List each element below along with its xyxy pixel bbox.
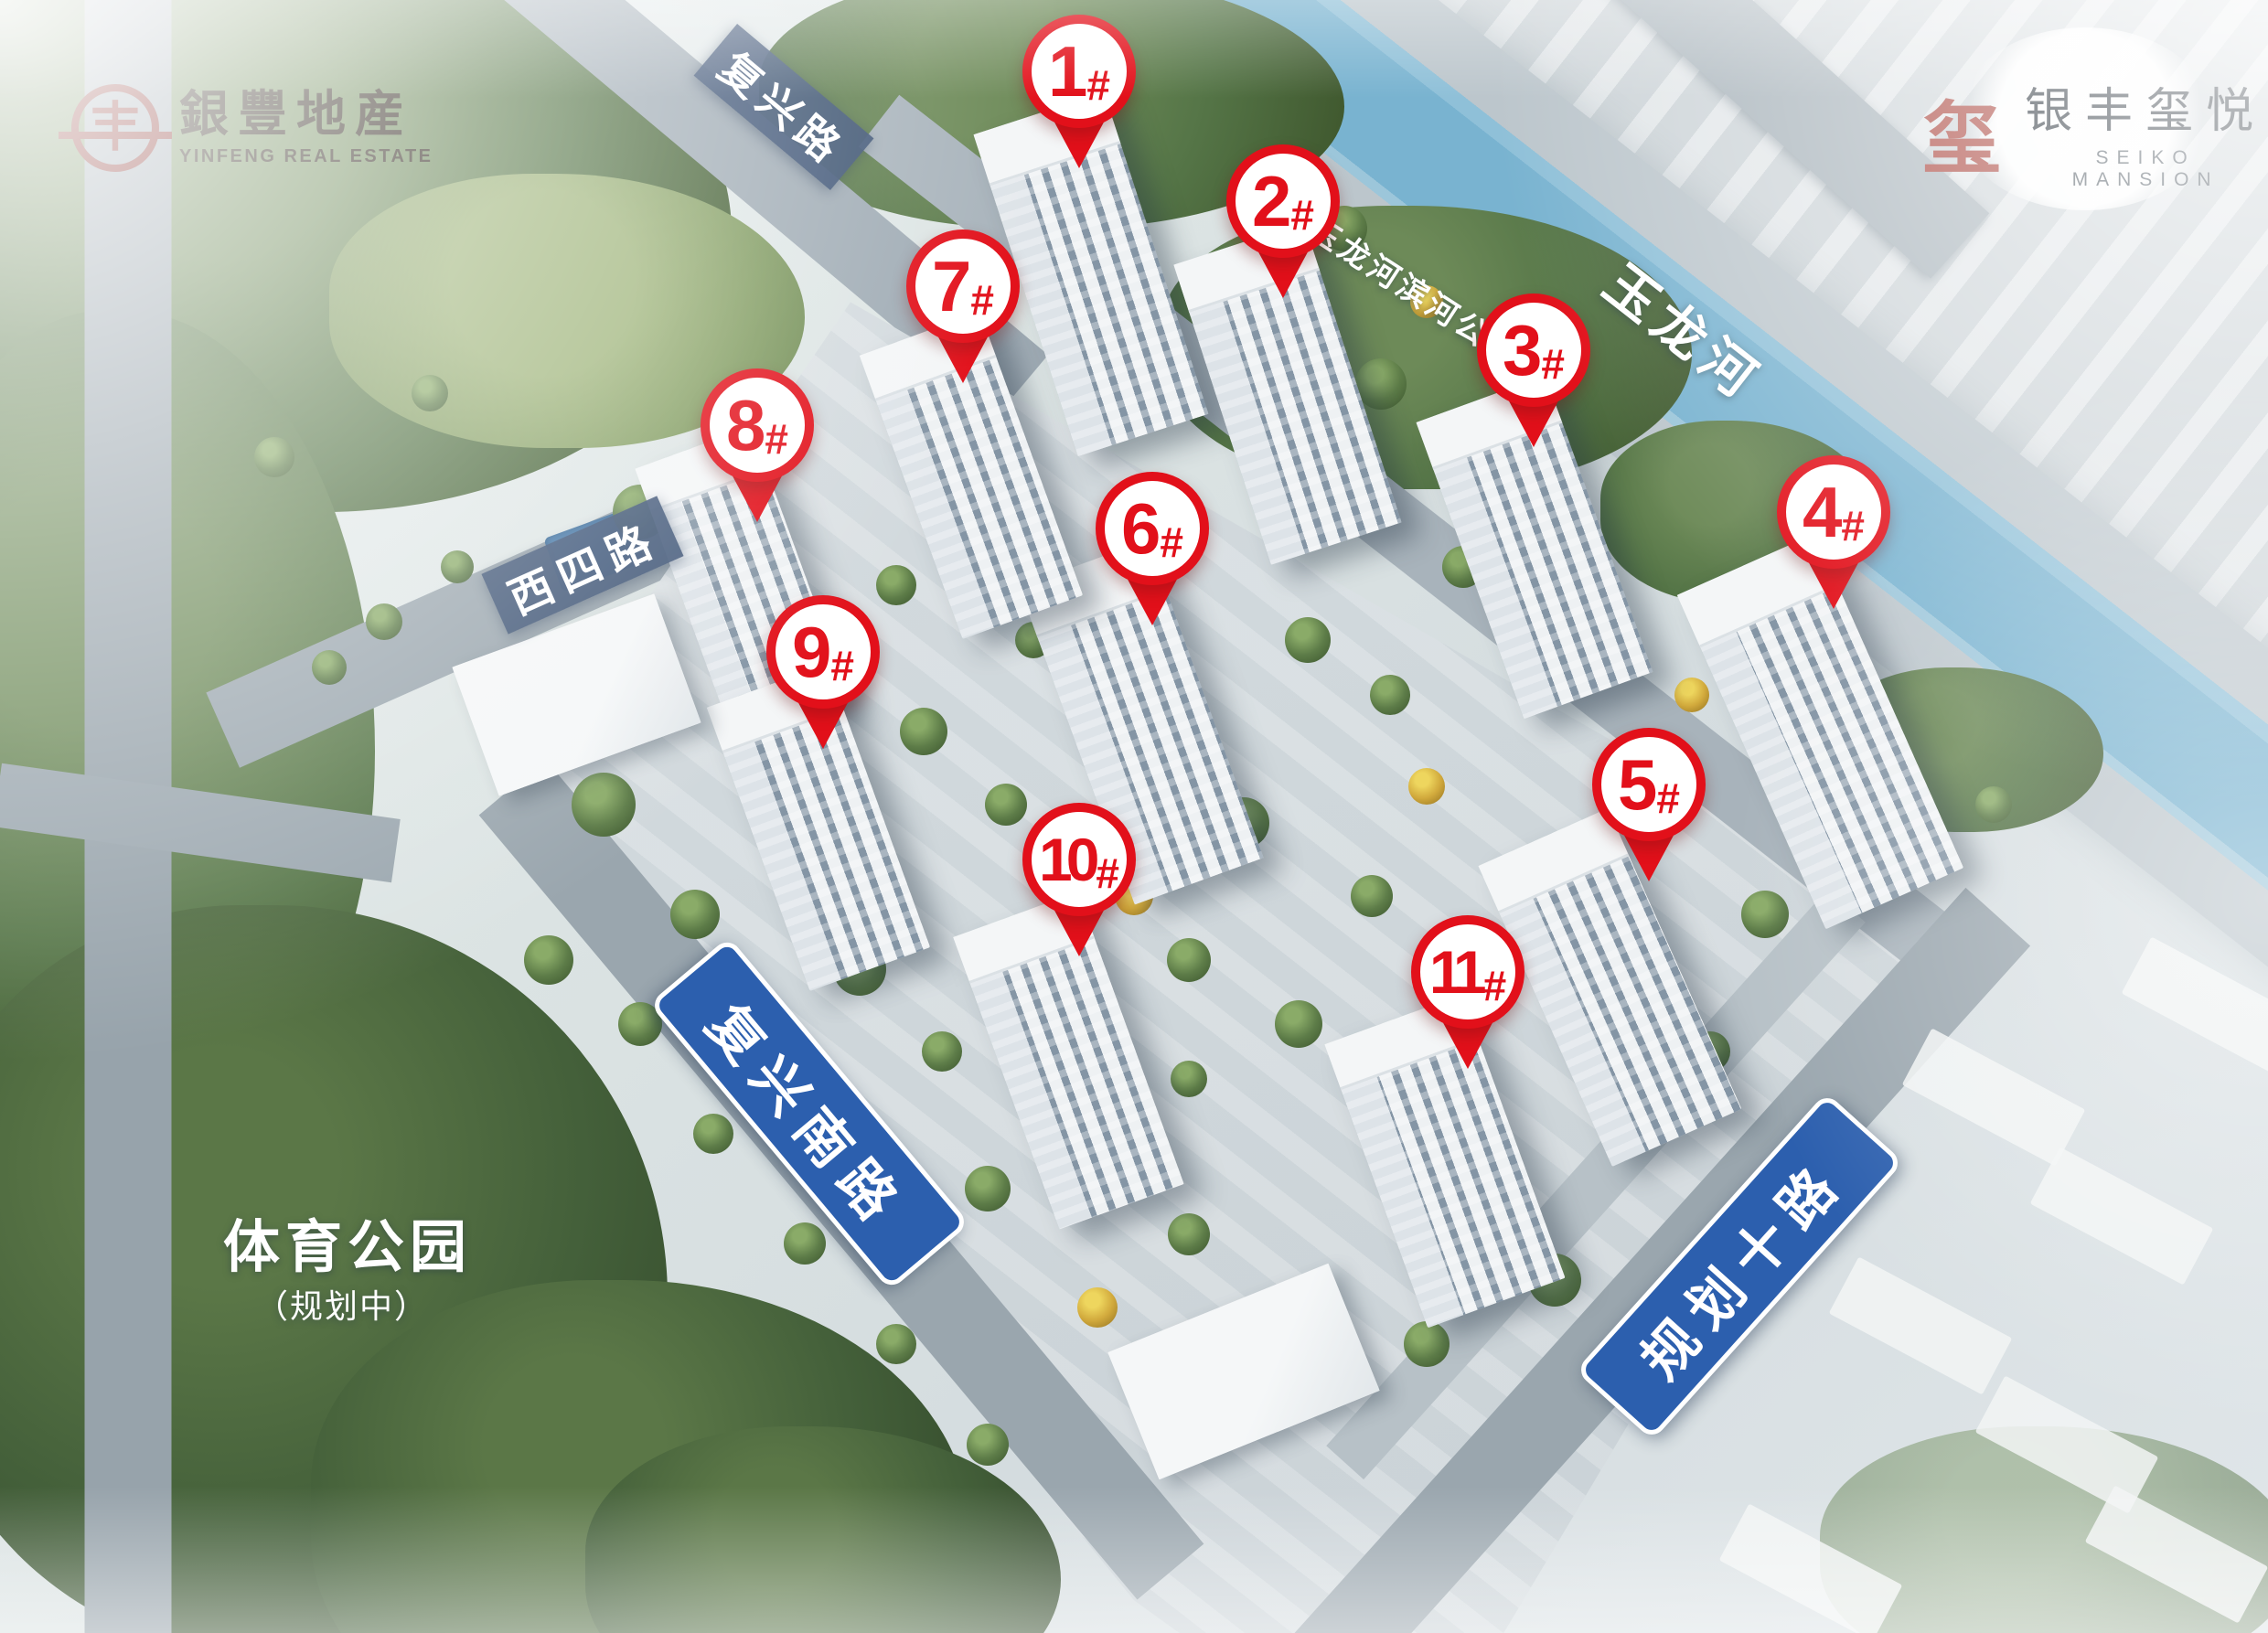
marker-circle: 4# — [1777, 455, 1890, 569]
marker-hash-suffix: # — [1160, 521, 1183, 563]
project-name-en: SEIKO MANSION — [2023, 147, 2268, 191]
marker-hash-suffix: # — [1096, 852, 1119, 894]
project-logo: 玺 银丰玺悦 SEIKO MANSION — [1920, 88, 2268, 191]
marker-circle: 7# — [906, 229, 1020, 343]
marker-number: 8 — [726, 390, 762, 461]
marker-number: 1 — [1048, 36, 1084, 107]
marker-number: 2 — [1252, 165, 1288, 237]
marker-number: 3 — [1503, 315, 1538, 386]
marker-circle: 5# — [1592, 728, 1706, 841]
marker-number: 11 — [1429, 942, 1481, 1002]
building-marker-11[interactable]: 11# — [1411, 915, 1524, 1069]
marker-circle: 8# — [701, 368, 814, 482]
marker-number: 4 — [1803, 476, 1838, 548]
marker-number: 5 — [1618, 749, 1653, 820]
marker-hash-suffix: # — [765, 418, 788, 460]
building-marker-10[interactable]: 10# — [1022, 803, 1136, 956]
building-marker-3[interactable]: 3# — [1477, 294, 1590, 447]
marker-circle: 6# — [1096, 472, 1209, 585]
seal-glyph: 玺 — [1922, 100, 2001, 178]
project-name-cn: 银丰玺悦 — [2023, 88, 2268, 138]
marker-circle: 3# — [1477, 294, 1590, 407]
marker-circle: 2# — [1226, 144, 1340, 258]
building-marker-7[interactable]: 7# — [906, 229, 1020, 383]
site-plan-rendering: 复兴路西四路复兴南路规划十路 玉龙河玉龙河滨河公园体育公园（规划中） 1#2#3… — [0, 0, 2268, 1633]
marker-circle: 1# — [1022, 15, 1136, 128]
marker-number: 10 — [1039, 829, 1093, 890]
marker-number: 7 — [932, 251, 968, 322]
building-marker-5[interactable]: 5# — [1592, 728, 1706, 881]
building-marker-9[interactable]: 9# — [766, 595, 880, 749]
marker-hash-suffix: # — [1541, 343, 1565, 385]
seal-glyph: 丰 — [89, 101, 142, 155]
marker-number: 9 — [792, 616, 828, 688]
developer-name-en: YINFENG REAL ESTATE — [179, 146, 433, 167]
building-marker-1[interactable]: 1# — [1022, 15, 1136, 168]
marker-circle: 11# — [1411, 915, 1524, 1029]
marker-hash-suffix: # — [1086, 64, 1110, 106]
building-marker-2[interactable]: 2# — [1226, 144, 1340, 298]
marker-hash-suffix: # — [830, 645, 854, 687]
marker-circle: 9# — [766, 595, 880, 709]
marker-circle: 10# — [1022, 803, 1136, 916]
building-marker-8[interactable]: 8# — [701, 368, 814, 522]
building-marker-4[interactable]: 4# — [1777, 455, 1890, 609]
building-markers-layer: 1#2#3#4#5#6#7#8#9#10#11# — [0, 0, 2268, 1633]
developer-logo: 丰 銀豐地産 YINFENG REAL ESTATE — [71, 84, 433, 172]
marker-hash-suffix: # — [1656, 777, 1680, 819]
marker-hash-suffix: # — [1290, 194, 1314, 236]
square-seal-icon: 玺 — [1920, 95, 2003, 183]
marker-number: 6 — [1121, 493, 1157, 564]
marker-hash-suffix: # — [1841, 505, 1865, 547]
round-seal-icon: 丰 — [71, 84, 159, 172]
marker-hash-suffix: # — [1483, 965, 1507, 1007]
developer-name-cn: 銀豐地産 — [179, 89, 433, 141]
building-marker-6[interactable]: 6# — [1096, 472, 1209, 625]
marker-hash-suffix: # — [970, 279, 994, 321]
